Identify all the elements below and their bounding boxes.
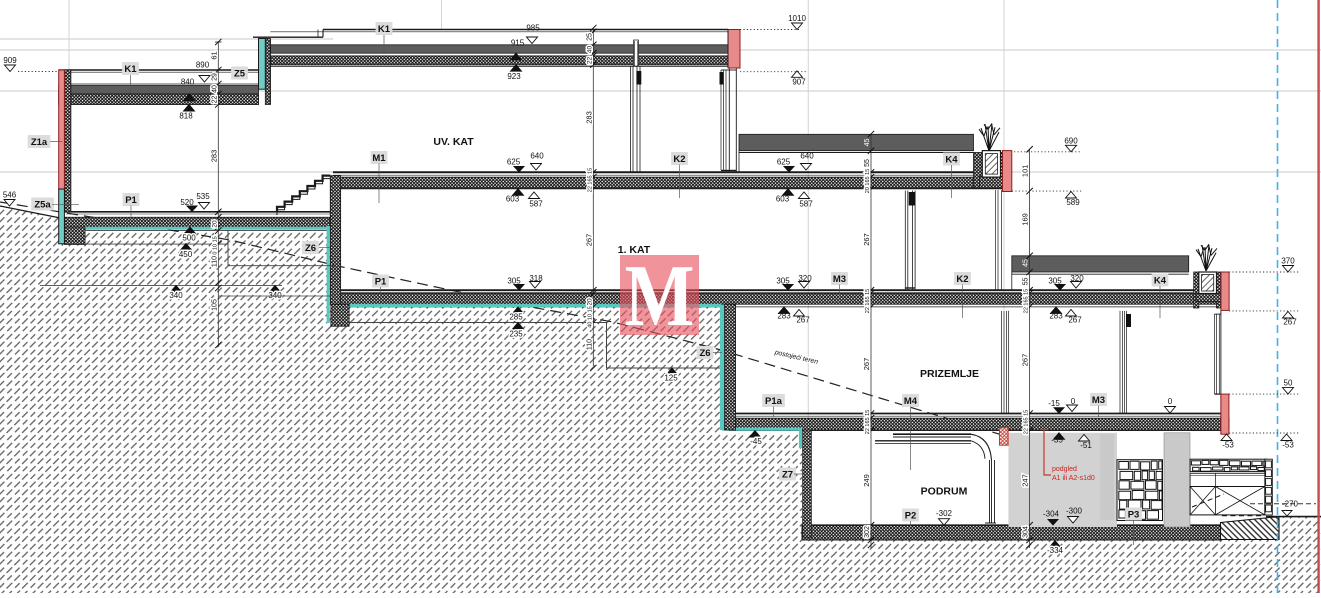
- svg-text:22 165 15: 22 165 15: [865, 289, 871, 313]
- svg-text:Z6: Z6: [699, 348, 710, 359]
- svg-text:520: 520: [180, 198, 194, 207]
- svg-text:40: 40: [211, 85, 218, 93]
- svg-text:22: 22: [211, 96, 218, 104]
- svg-text:625: 625: [777, 158, 791, 167]
- svg-text:907: 907: [792, 78, 806, 87]
- svg-text:267: 267: [796, 316, 810, 325]
- svg-text:podgled: podgled: [1052, 466, 1077, 473]
- svg-text:55: 55: [1023, 278, 1030, 286]
- svg-text:640: 640: [800, 152, 814, 161]
- svg-text:P3: P3: [1128, 509, 1140, 520]
- svg-text:110: 110: [211, 256, 218, 267]
- svg-text:Z6: Z6: [305, 243, 316, 254]
- svg-text:PODRUM: PODRUM: [921, 486, 968, 498]
- svg-text:-304: -304: [1043, 510, 1060, 519]
- svg-text:125: 125: [664, 374, 678, 383]
- svg-text:UV. KAT: UV. KAT: [433, 136, 474, 148]
- svg-text:450: 450: [179, 250, 193, 259]
- svg-text:M3: M3: [1092, 395, 1105, 406]
- svg-text:283: 283: [584, 111, 593, 124]
- svg-text:235: 235: [509, 330, 523, 339]
- svg-text:535: 535: [196, 192, 210, 201]
- svg-text:304: 304: [1023, 526, 1030, 538]
- svg-text:0: 0: [1168, 397, 1173, 406]
- svg-text:340: 340: [169, 291, 183, 300]
- svg-text:Z5a: Z5a: [34, 199, 51, 210]
- svg-text:-53: -53: [1282, 441, 1294, 450]
- svg-text:923: 923: [507, 72, 521, 81]
- svg-text:587: 587: [799, 200, 813, 209]
- svg-text:P1: P1: [125, 195, 137, 206]
- svg-text:267: 267: [1283, 318, 1297, 327]
- svg-text:267: 267: [862, 358, 871, 371]
- svg-text:101: 101: [1021, 165, 1030, 178]
- svg-text:K2: K2: [956, 274, 968, 285]
- svg-text:640: 640: [530, 152, 544, 161]
- svg-text:25: 25: [586, 33, 593, 41]
- svg-text:22 165 15: 22 165 15: [1024, 410, 1030, 434]
- svg-text:61: 61: [209, 51, 218, 59]
- svg-text:M: M: [625, 247, 695, 344]
- svg-text:M1: M1: [372, 153, 386, 164]
- svg-text:909: 909: [3, 56, 17, 65]
- svg-text:169: 169: [1021, 213, 1030, 226]
- svg-text:546: 546: [3, 191, 17, 200]
- svg-text:283: 283: [209, 150, 218, 163]
- svg-text:K2: K2: [673, 154, 685, 165]
- svg-text:267: 267: [1068, 316, 1082, 325]
- svg-text:500: 500: [182, 233, 196, 242]
- svg-text:267: 267: [584, 234, 593, 247]
- svg-text:Z5: Z5: [234, 68, 246, 79]
- svg-text:283: 283: [777, 312, 791, 321]
- svg-text:603: 603: [506, 195, 520, 204]
- svg-text:267: 267: [862, 233, 871, 246]
- svg-text:-53: -53: [1222, 441, 1234, 450]
- svg-text:840: 840: [181, 78, 195, 87]
- svg-text:50: 50: [1284, 379, 1293, 388]
- svg-text:22: 22: [586, 57, 593, 65]
- svg-text:40: 40: [586, 46, 593, 54]
- svg-text:20 165 15: 20 165 15: [865, 169, 871, 193]
- svg-text:M4: M4: [904, 396, 918, 407]
- svg-text:603: 603: [776, 195, 790, 204]
- svg-text:-334: -334: [1047, 546, 1064, 555]
- svg-text:587: 587: [529, 200, 543, 209]
- svg-text:105: 105: [211, 299, 218, 311]
- svg-text:Z7: Z7: [782, 469, 793, 480]
- svg-text:A1 ili A2-s1d0: A1 ili A2-s1d0: [1052, 475, 1095, 482]
- svg-text:P1: P1: [375, 276, 387, 287]
- svg-text:20: 20: [211, 220, 218, 228]
- svg-text:1010: 1010: [788, 14, 806, 23]
- svg-text:-51: -51: [1080, 441, 1092, 450]
- svg-text:40 10 15: 40 10 15: [587, 306, 593, 327]
- svg-text:P2: P2: [905, 510, 917, 521]
- svg-text:22 165 15: 22 165 15: [587, 168, 593, 192]
- svg-text:40 10 15: 40 10 15: [212, 236, 218, 257]
- svg-text:247: 247: [1021, 474, 1030, 487]
- svg-text:29: 29: [211, 73, 218, 81]
- svg-text:-300: -300: [1066, 507, 1083, 516]
- svg-text:-35: -35: [1051, 436, 1063, 445]
- svg-text:-302: -302: [936, 509, 953, 518]
- svg-text:249: 249: [862, 474, 871, 487]
- svg-text:M3: M3: [833, 274, 846, 285]
- svg-text:915: 915: [511, 39, 525, 48]
- svg-text:-270: -270: [1282, 500, 1299, 509]
- svg-text:-45: -45: [750, 437, 762, 446]
- svg-text:625: 625: [507, 158, 521, 167]
- svg-text:589: 589: [1066, 198, 1080, 207]
- svg-text:267: 267: [1021, 354, 1030, 367]
- svg-text:818: 818: [179, 112, 193, 121]
- svg-text:45: 45: [1023, 259, 1030, 267]
- svg-text:22 165 15: 22 165 15: [865, 410, 871, 434]
- svg-text:-15: -15: [1048, 399, 1060, 408]
- svg-text:302: 302: [864, 526, 871, 538]
- svg-text:K4: K4: [1154, 275, 1167, 286]
- svg-text:370: 370: [1281, 257, 1295, 266]
- svg-text:110: 110: [586, 339, 593, 350]
- svg-text:K1: K1: [378, 24, 391, 35]
- svg-text:285: 285: [509, 313, 523, 322]
- svg-text:22 165 15: 22 165 15: [1024, 289, 1030, 313]
- svg-text:283: 283: [1049, 312, 1063, 321]
- svg-text:890: 890: [196, 61, 210, 70]
- svg-text:Z1a: Z1a: [31, 137, 48, 148]
- svg-text:55: 55: [864, 159, 871, 167]
- svg-text:K1: K1: [124, 64, 137, 75]
- svg-text:PRIZEMLJE: PRIZEMLJE: [920, 368, 979, 380]
- svg-text:K4: K4: [945, 154, 958, 165]
- svg-text:20: 20: [586, 298, 593, 306]
- svg-text:985: 985: [526, 24, 540, 33]
- svg-text:45: 45: [864, 139, 871, 147]
- svg-text:690: 690: [1064, 136, 1078, 145]
- svg-text:P1a: P1a: [765, 396, 783, 407]
